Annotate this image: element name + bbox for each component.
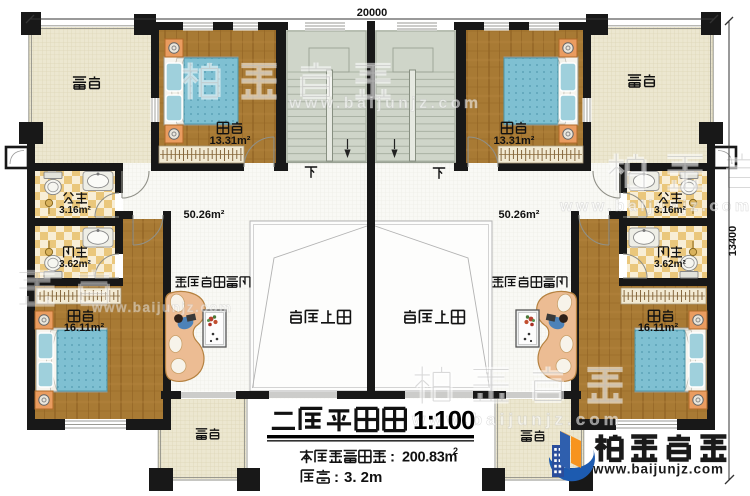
svg-text:3.62m²: 3.62m²: [59, 259, 91, 270]
svg-text:3.16m²: 3.16m²: [59, 205, 91, 216]
svg-text:16.11m²: 16.11m²: [638, 322, 679, 334]
svg-text:20000: 20000: [357, 7, 388, 19]
svg-text:16.11m²: 16.11m²: [64, 322, 105, 334]
svg-text:13.31m²: 13.31m²: [494, 135, 535, 147]
svg-text::: :: [334, 469, 339, 486]
svg-text:www.baijunjz.com: www.baijunjz.com: [91, 300, 233, 315]
svg-text::: :: [390, 449, 395, 466]
svg-text:www.baijunjz.com: www.baijunjz.com: [288, 95, 482, 112]
svg-text:3.16m²: 3.16m²: [654, 205, 686, 216]
svg-text:50.26m²: 50.26m²: [184, 209, 225, 221]
svg-text:50.26m²: 50.26m²: [499, 209, 540, 221]
svg-text:3. 2m: 3. 2m: [344, 469, 382, 486]
svg-text:2: 2: [453, 446, 458, 456]
svg-text:13.31m²: 13.31m²: [210, 135, 251, 147]
svg-text:www.baijunjz.com: www.baijunjz.com: [592, 462, 724, 477]
svg-text:13400: 13400: [727, 226, 739, 257]
svg-text:200.83m: 200.83m: [402, 450, 457, 466]
svg-text:1:100: 1:100: [413, 405, 475, 435]
svg-text:3.62m²: 3.62m²: [654, 259, 686, 270]
